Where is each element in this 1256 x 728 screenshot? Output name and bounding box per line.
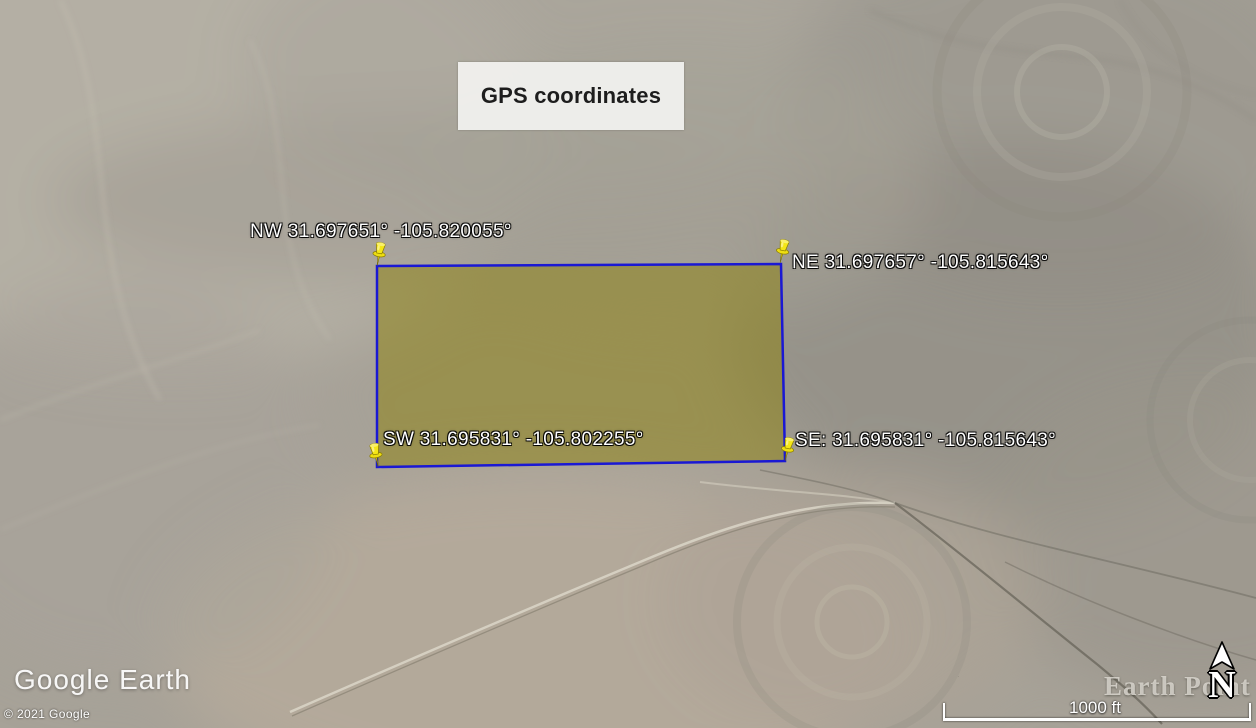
copyright-notice: © 2021 Google [4, 707, 90, 721]
google-earth-logo: Google Earth [14, 664, 191, 696]
north-compass[interactable]: N [1199, 640, 1245, 702]
corner-label-se: SE: 31.695831° -105.815643° [795, 430, 1056, 452]
corner-label-ne: NE 31.697657° -105.815643° [792, 252, 1048, 274]
scale-bar [943, 703, 1251, 721]
corner-label-nw: NW 31.697651° -105.820055° [250, 221, 512, 243]
pushpin-nw[interactable] [371, 241, 387, 266]
gps-coordinates-title-box: GPS coordinates [458, 62, 684, 130]
pushpin-ne[interactable] [774, 238, 791, 264]
corner-label-sw: SW 31.695831° -105.802255° [383, 429, 644, 451]
google-earth-viewport: GPS coordinates NW 31.697651° -105.82005… [0, 0, 1256, 728]
page-title: GPS coordinates [481, 83, 661, 109]
north-letter: N [1199, 668, 1245, 702]
